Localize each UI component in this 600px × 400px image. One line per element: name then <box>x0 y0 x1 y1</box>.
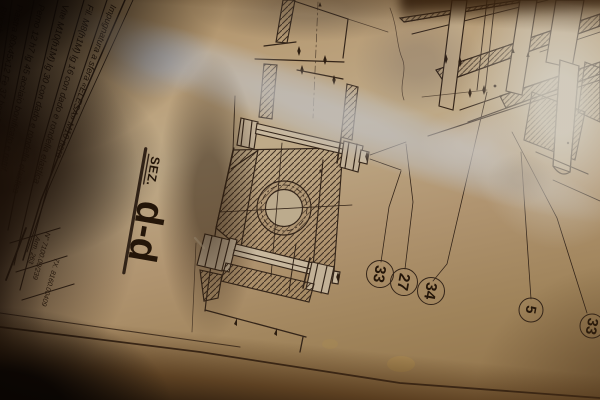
svg-text:33: 33 <box>369 264 389 284</box>
svg-text:33: 33 <box>582 317 600 336</box>
svg-text:27: 27 <box>393 272 413 292</box>
svg-text:34: 34 <box>420 281 440 301</box>
svg-text:5: 5 <box>522 304 539 315</box>
